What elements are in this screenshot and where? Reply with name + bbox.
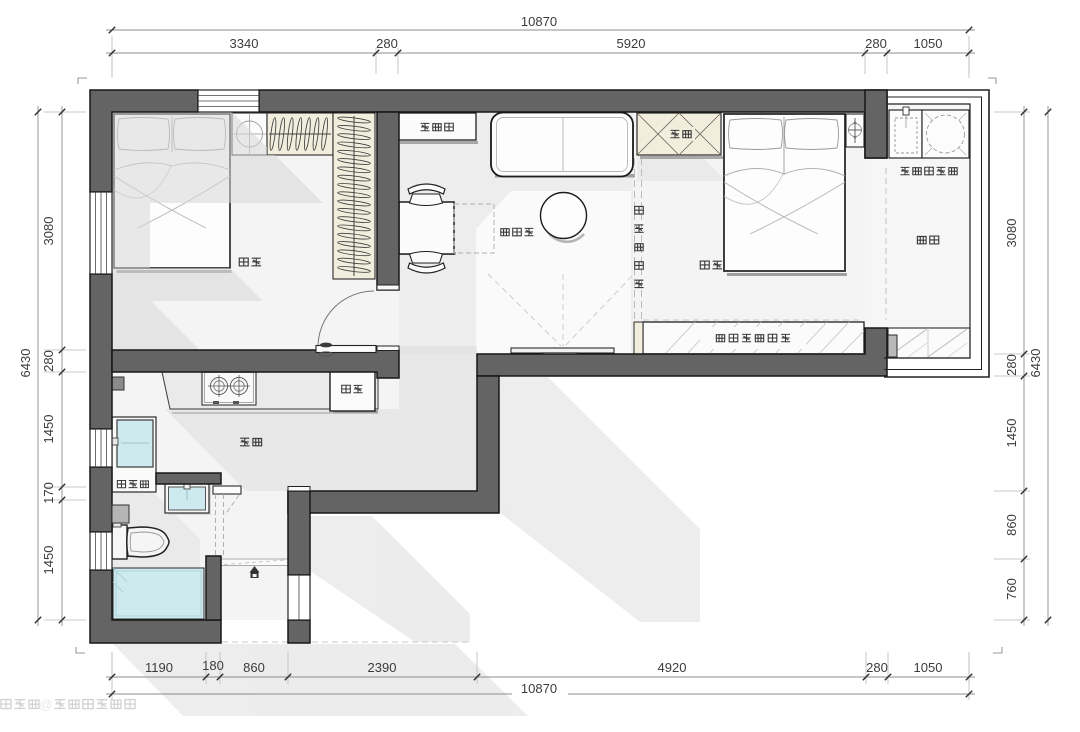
svg-text:1450: 1450 — [41, 546, 56, 575]
svg-text:6430: 6430 — [1028, 349, 1043, 378]
svg-text:170: 170 — [41, 482, 56, 504]
svg-text:280: 280 — [865, 36, 887, 51]
svg-text:2390: 2390 — [368, 660, 397, 675]
svg-text:1450: 1450 — [1004, 419, 1019, 448]
svg-text:280: 280 — [41, 350, 56, 372]
svg-text:280: 280 — [376, 36, 398, 51]
svg-text:3340: 3340 — [230, 36, 259, 51]
svg-text:1190: 1190 — [145, 660, 173, 675]
svg-text:860: 860 — [243, 660, 265, 675]
svg-text:5920: 5920 — [617, 36, 646, 51]
svg-text:1450: 1450 — [41, 415, 56, 444]
svg-text:1050: 1050 — [914, 36, 943, 51]
svg-text:1050: 1050 — [914, 660, 943, 675]
svg-text:180: 180 — [202, 658, 224, 673]
svg-text:860: 860 — [1004, 514, 1019, 536]
svg-text:3080: 3080 — [41, 217, 56, 246]
svg-text:280: 280 — [1004, 354, 1019, 376]
svg-text:3080: 3080 — [1004, 219, 1019, 248]
svg-text:10870: 10870 — [521, 681, 557, 696]
svg-text:4920: 4920 — [658, 660, 687, 675]
svg-text:280: 280 — [866, 660, 888, 675]
svg-text:6430: 6430 — [18, 349, 33, 378]
svg-text:@: @ — [39, 697, 52, 712]
svg-text:760: 760 — [1004, 578, 1019, 600]
svg-text:10870: 10870 — [521, 14, 557, 29]
